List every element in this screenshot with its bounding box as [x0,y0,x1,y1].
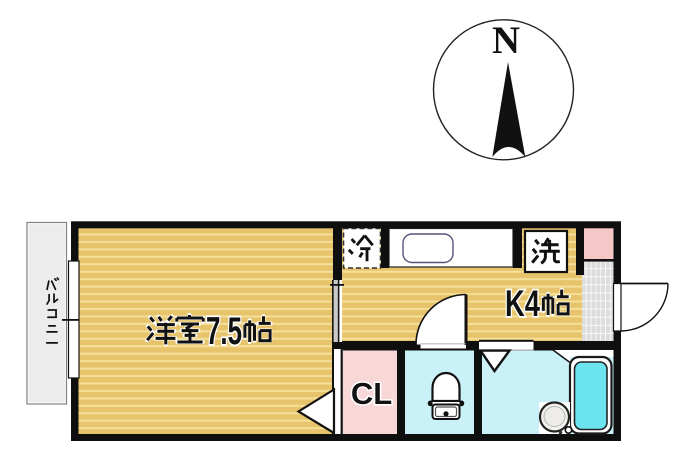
svg-text:K4: K4 [505,283,540,324]
svg-text:N: N [492,19,520,62]
svg-text:7.5: 7.5 [206,310,242,353]
svg-text:CL: CL [351,376,392,411]
